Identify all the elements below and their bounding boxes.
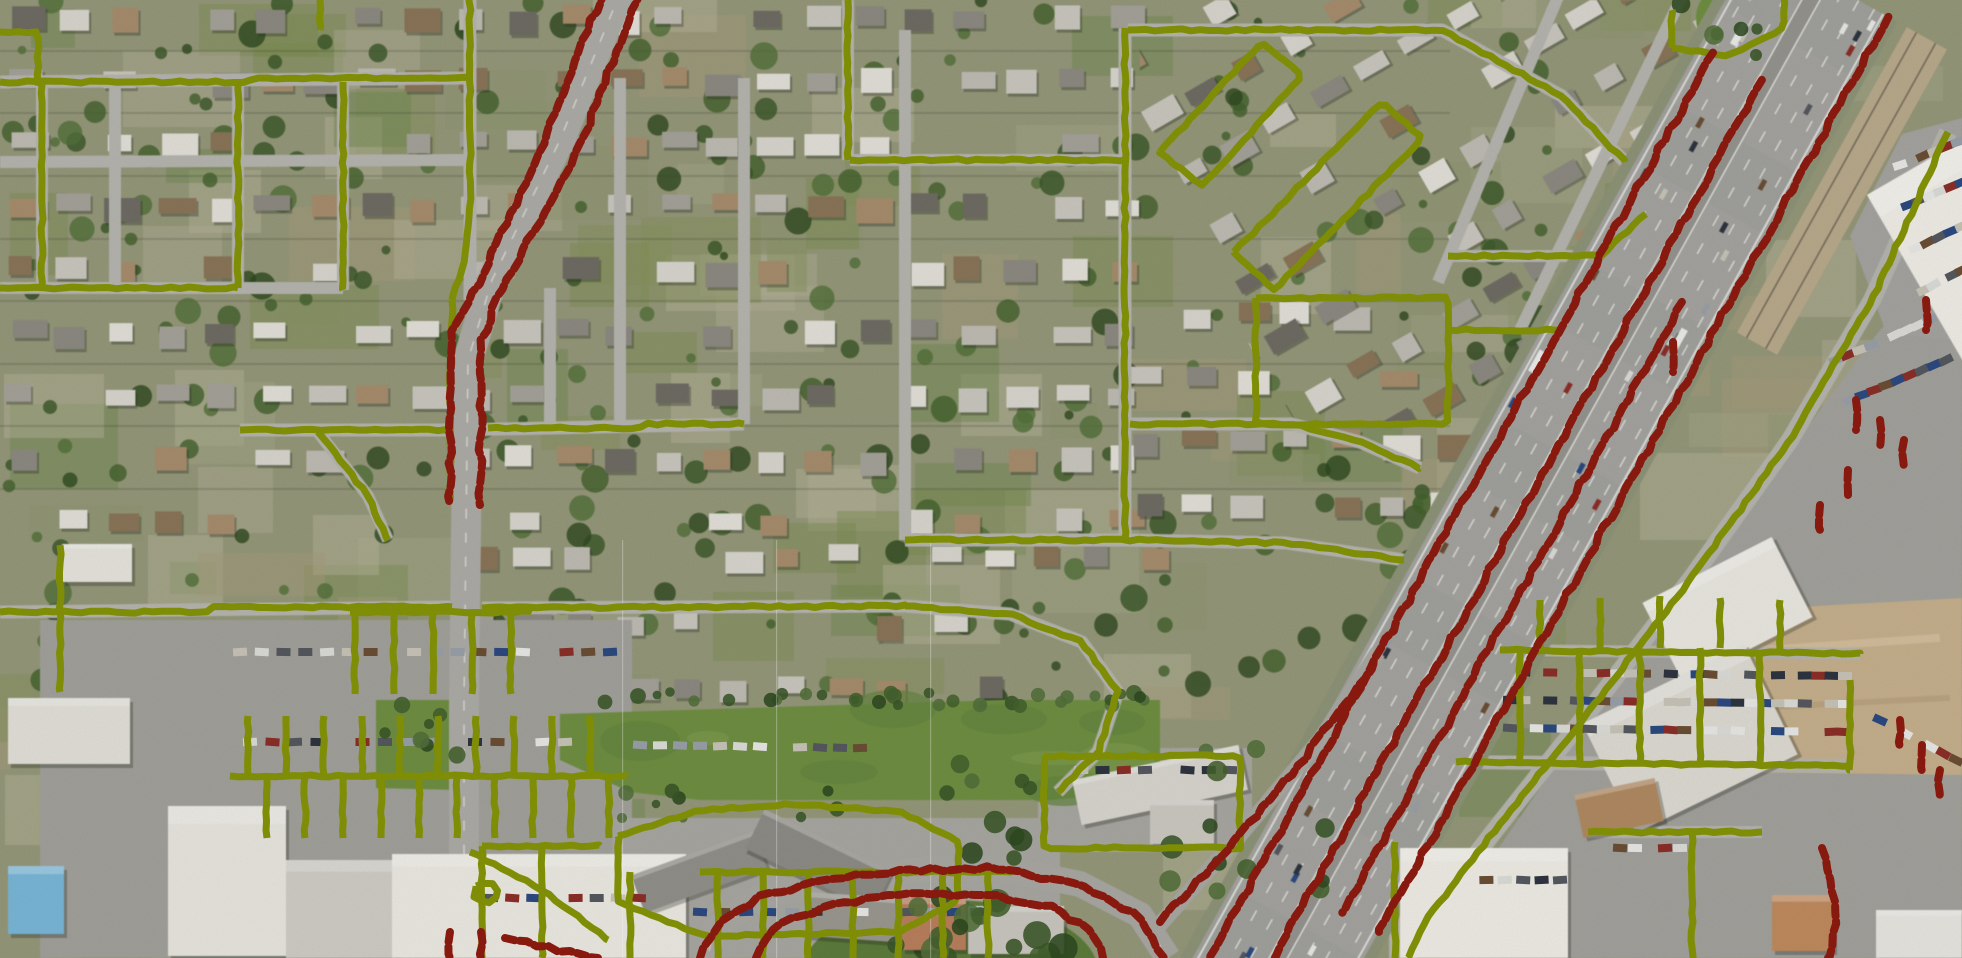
map-viewport[interactable]	[0, 0, 1962, 958]
image-noise-overlay	[0, 0, 1962, 958]
aerial-map-canvas[interactable]	[0, 0, 1962, 958]
